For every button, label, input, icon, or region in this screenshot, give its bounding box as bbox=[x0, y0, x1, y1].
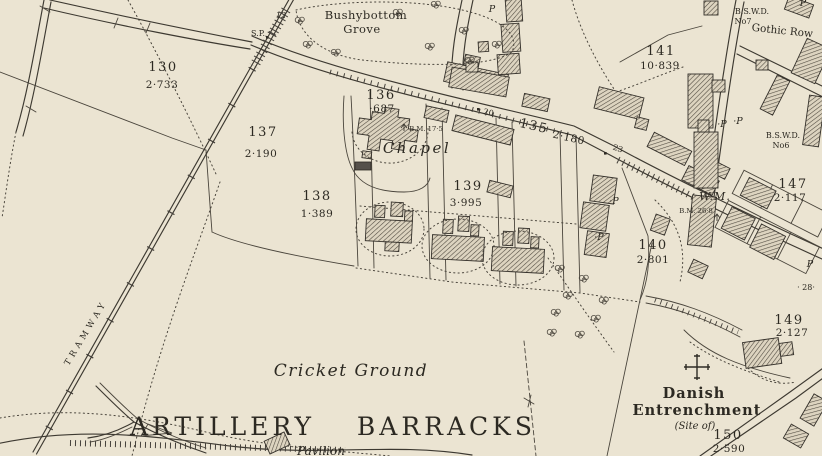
label-post-p: P bbox=[799, 0, 807, 9]
label-wm: W.M. bbox=[699, 190, 731, 203]
label-parcel-149-acreage: 2·127 bbox=[776, 327, 809, 339]
label-pavilion: Pavilion bbox=[296, 444, 345, 456]
label-grove-line1: Bushybottom bbox=[325, 8, 408, 22]
label-bswd-no7-line2: No7 bbox=[735, 17, 752, 26]
label-parcel-150-acreage: 2·590 bbox=[713, 443, 746, 455]
label-parcel-130-number: 130 bbox=[148, 60, 177, 75]
map-canvas: Bushybottom Grove 130 2·733 137 2·190 13… bbox=[0, 0, 822, 456]
label-parcel-139-number: 139 bbox=[453, 179, 482, 194]
label-parcel-137-number: 137 bbox=[248, 125, 277, 140]
label-parcel-136-acreage: ·687 bbox=[369, 103, 394, 115]
label-parcel-139-acreage: 3·995 bbox=[450, 197, 483, 209]
label-number-28: · 28· bbox=[797, 283, 815, 292]
label-parcel-130-acreage: 2·733 bbox=[146, 79, 179, 91]
label-post-p: P bbox=[806, 259, 814, 270]
label-bswd-no6-line2: No6 bbox=[773, 141, 790, 150]
label-number-12: 12 bbox=[276, 11, 286, 20]
survey-dot bbox=[604, 152, 607, 155]
signal-post-dot bbox=[266, 36, 269, 39]
label-parcel-150-number: 150 bbox=[713, 428, 742, 443]
label-bswd-no6-line1: B.S.W.D. bbox=[766, 131, 800, 140]
label-artillery-barracks: ARTILLERY BARRACKS bbox=[129, 412, 536, 441]
label-parcel-136-number: 136 bbox=[366, 88, 395, 103]
label-parcel-141-acreage: 10·839 bbox=[640, 60, 680, 72]
label-parcel-138-number: 138 bbox=[302, 189, 331, 204]
label-benchmark-17-5: B.M. 17·5 bbox=[409, 125, 443, 133]
label-post-p: ·P bbox=[594, 232, 604, 243]
label-parcel-140-acreage: 2·801 bbox=[637, 254, 670, 266]
label-parcel-138-acreage: 1·389 bbox=[301, 208, 334, 220]
label-parcel-137-acreage: 2·190 bbox=[245, 148, 278, 160]
label-danish-line2: Entrenchment bbox=[633, 402, 762, 419]
os-map-sheet: Bushybottom Grove 130 2·733 137 2·190 13… bbox=[0, 0, 822, 456]
label-danish-line3: (Site of) bbox=[675, 421, 716, 432]
label-parcel-149-number: 149 bbox=[774, 313, 803, 328]
label-cricket-ground: Cricket Ground bbox=[274, 361, 428, 381]
label-grove-line2: Grove bbox=[343, 22, 380, 36]
label-post-p: ·P bbox=[733, 116, 743, 127]
label-benchmark-26-8: B.M. 26·8 bbox=[679, 207, 713, 215]
label-parcel-140-number: 140 bbox=[638, 238, 667, 253]
label-post-p: P bbox=[488, 4, 496, 15]
label-parcel-147-number: 147 bbox=[778, 177, 807, 192]
label-danish-line1: Danish bbox=[663, 385, 726, 402]
label-chapel: Chapel bbox=[383, 139, 451, 157]
label-post-p: ·P bbox=[609, 196, 619, 207]
label-signal-post: S.P. bbox=[251, 29, 265, 38]
label-parcel-141-number: 141 bbox=[646, 44, 675, 59]
label-parcel-147-acreage: 2·117 bbox=[774, 192, 807, 204]
label-post-p: ·P bbox=[717, 119, 727, 130]
label-bswd-no7-line1: B.S.W.D. bbox=[735, 7, 769, 16]
survey-dot bbox=[477, 108, 480, 111]
